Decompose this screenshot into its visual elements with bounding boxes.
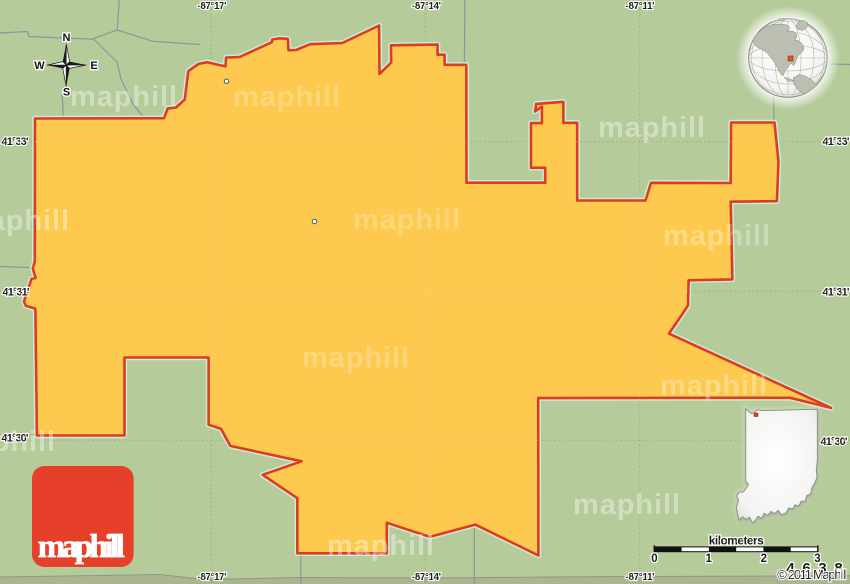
svg-text:0: 0 — [651, 553, 657, 565]
svg-text:41°33': 41°33' — [2, 136, 29, 148]
svg-text:maphill: maphill — [327, 530, 434, 562]
svg-text:-87°14': -87°14' — [412, 1, 441, 12]
svg-text:W: W — [34, 60, 45, 72]
svg-text:41°31': 41°31' — [3, 287, 30, 299]
svg-text:maphill: maphill — [663, 220, 770, 252]
svg-text:41°31': 41°31' — [823, 287, 850, 299]
svg-text:maphill: maphill — [598, 112, 705, 144]
svg-text:1: 1 — [705, 553, 712, 565]
svg-text:N: N — [63, 32, 71, 44]
svg-text:maphill: maphill — [38, 529, 125, 565]
svg-text:2: 2 — [761, 553, 767, 565]
svg-text:maphill: maphill — [302, 342, 409, 374]
svg-text:-87°11': -87°11' — [626, 572, 655, 583]
svg-text:-87°14': -87°14' — [412, 572, 441, 583]
svg-text:maphill: maphill — [0, 205, 69, 237]
svg-text:-87°11': -87°11' — [626, 1, 655, 12]
svg-text:-87°17': -87°17' — [198, 572, 227, 583]
svg-text:maphill: maphill — [70, 81, 177, 113]
svg-text:maphill: maphill — [233, 81, 340, 113]
svg-text:© 2011 Maphill: © 2011 Maphill — [777, 567, 846, 582]
svg-text:S: S — [63, 87, 70, 99]
svg-text:maphill: maphill — [353, 204, 460, 236]
svg-text:-87°17': -87°17' — [198, 1, 227, 12]
svg-text:41°33': 41°33' — [823, 136, 850, 148]
svg-text:E: E — [90, 60, 97, 72]
svg-text:maphill: maphill — [660, 370, 767, 402]
svg-text:41°30': 41°30' — [2, 433, 29, 445]
svg-text:maphill: maphill — [573, 489, 680, 521]
svg-text:41°30': 41°30' — [821, 436, 848, 448]
svg-text:kilometers: kilometers — [709, 534, 764, 548]
